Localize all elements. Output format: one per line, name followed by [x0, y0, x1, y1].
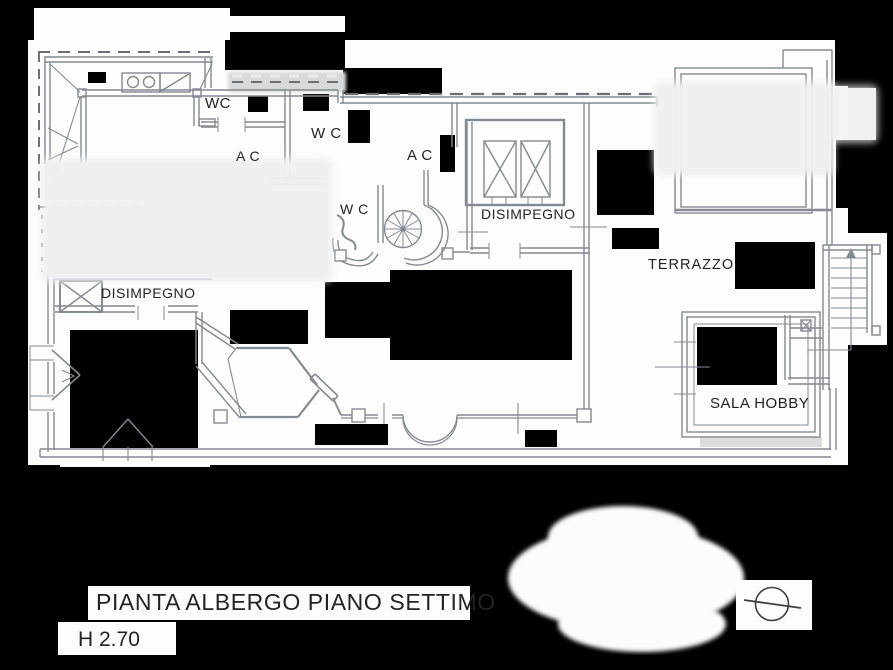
- room-label-ac-1: A C: [236, 149, 260, 163]
- wall: [81, 96, 86, 163]
- plan-title: PIANTA ALBERGO PIANO SETTIMO: [96, 591, 496, 614]
- column-x: [801, 320, 811, 331]
- redaction-box: [658, 86, 830, 171]
- redaction-box: [45, 162, 328, 278]
- window-sill: [30, 346, 54, 410]
- north-symbol-icon: [744, 588, 801, 621]
- wall-post: [214, 410, 227, 423]
- wall: [194, 96, 199, 126]
- door-tick: [138, 306, 164, 320]
- wall: [452, 103, 457, 147]
- railing-post: [352, 409, 365, 422]
- room-label-ac-2: A C: [407, 148, 433, 163]
- elevator-ticks: [492, 197, 542, 204]
- wall: [48, 273, 54, 452]
- room-label-wc-2: W C: [311, 126, 342, 141]
- bay-parapet: [237, 348, 319, 417]
- room-label-disimpegno-top: DISIMPEGNO: [481, 207, 575, 221]
- door-arrow: [62, 370, 74, 382]
- curved-wall: [337, 215, 355, 250]
- redaction-box: [830, 89, 874, 139]
- door-tick: [218, 117, 245, 132]
- plan-height-note: H 2.70: [78, 629, 140, 650]
- elevator-x: [521, 141, 550, 197]
- room-sala-hobby: [682, 312, 820, 437]
- window-tick: [674, 342, 696, 394]
- stair-nub: [872, 326, 880, 335]
- wall: [470, 248, 590, 253]
- door-tick: [489, 243, 520, 259]
- wall: [378, 185, 383, 243]
- elevator-x: [484, 141, 516, 197]
- room-label-wc-3: W C: [340, 202, 369, 216]
- triangle-marker: [103, 419, 153, 447]
- stair-treads: [831, 258, 867, 328]
- floor-plan-page: WC W C A C A C W C DISIMPEGNO DISIMPEGNO…: [0, 0, 893, 670]
- room-label-terrazzo: TERRAZZO: [648, 258, 734, 273]
- wall: [424, 170, 428, 205]
- elevator-x: [60, 281, 102, 312]
- bottom-black-bar: [0, 655, 893, 670]
- bay-parapet: [333, 398, 341, 415]
- wall-post: [335, 250, 346, 261]
- room-label-wc-1: WC: [205, 96, 231, 111]
- terrace-edge: [40, 449, 831, 457]
- elevator-block: [466, 120, 564, 205]
- room-label-disimpegno-left: DISIMPEGNO: [101, 286, 195, 300]
- room-label-sala-hobby: SALA HOBBY: [710, 396, 809, 411]
- kitchen-burner: [128, 77, 139, 88]
- door-swing: [52, 350, 80, 400]
- wall: [584, 103, 589, 412]
- wall-top: [340, 97, 657, 107]
- wall: [827, 213, 832, 245]
- railing-post: [577, 409, 591, 422]
- wall: [467, 122, 472, 250]
- railing: [341, 418, 578, 445]
- stair-nub: [872, 245, 880, 254]
- kitchen-burner: [144, 77, 155, 88]
- kitchen-diagonal: [161, 74, 189, 91]
- railing: [341, 415, 578, 442]
- room-sala-hobby-mid: [687, 317, 815, 432]
